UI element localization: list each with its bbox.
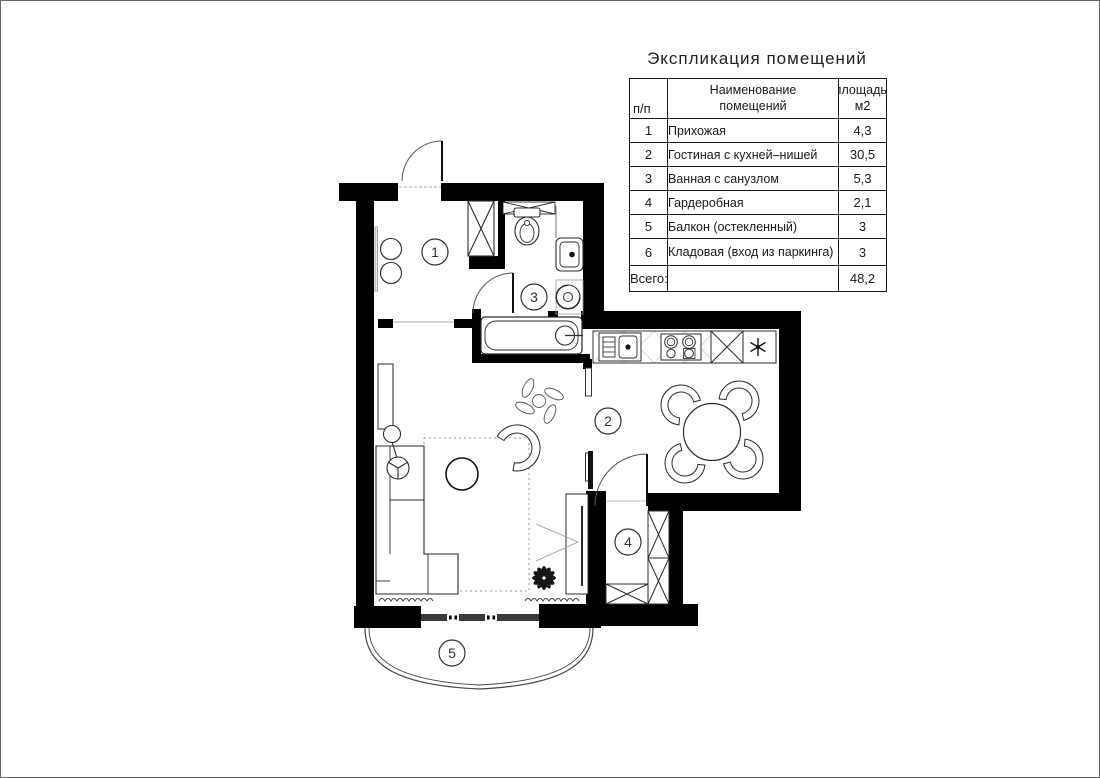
table-row: 3 Ванная с санузлом 5,3 <box>630 167 887 191</box>
table-row: 1 Прихожая 4,3 <box>630 119 887 143</box>
toilet <box>514 208 540 245</box>
svg-text:5: 5 <box>448 645 456 661</box>
table-row: 4 Гардеробная 2,1 <box>630 191 887 215</box>
table-row: 6 Кладовая (вход из паркинга) 3 <box>630 239 887 266</box>
bathtub <box>481 317 583 354</box>
radiators <box>379 599 579 602</box>
hall-cabinet <box>468 201 494 256</box>
table-title: Экспликация помещений <box>629 49 885 69</box>
room-label-1: 1 <box>422 239 448 265</box>
total-area: 48,2 <box>839 266 887 292</box>
wash-basin <box>556 238 583 271</box>
tall-cabinet <box>711 331 743 363</box>
window-unit <box>421 614 539 621</box>
room-label-5: 5 <box>439 640 465 666</box>
drawing-sheet: 1 2 3 4 5 Экспликация помещений п/п Наим… <box>0 0 1100 778</box>
tv-panel <box>588 451 593 489</box>
svg-text:3: 3 <box>530 289 538 305</box>
table-header-row: п/п Наименование помещений площадь, м2 <box>630 79 887 119</box>
room-label-3: 3 <box>521 284 547 310</box>
bathroom-door <box>473 273 513 313</box>
svg-text:1: 1 <box>431 244 439 260</box>
armchair <box>497 425 540 471</box>
ceiling-light <box>743 331 776 363</box>
svg-text:2: 2 <box>604 413 612 429</box>
table-total-row: Всего: 48,2 <box>630 266 887 292</box>
wardrobe-cells <box>606 511 669 604</box>
side-cabinet <box>566 494 588 594</box>
entry-door <box>402 141 442 181</box>
kitchen-sink <box>599 333 641 361</box>
room-label-2: 2 <box>595 408 621 434</box>
dining-table <box>684 404 741 461</box>
svg-text:4: 4 <box>624 534 632 550</box>
header-num: п/п <box>630 79 667 118</box>
wall-shelf <box>378 364 393 429</box>
plant <box>532 566 556 590</box>
coffee-table <box>446 458 478 490</box>
total-label: Всего: <box>630 266 668 292</box>
stools <box>381 239 402 284</box>
hanging-decor <box>514 377 565 425</box>
table-row: 2 Гостиная с кухней–нишей 30,5 <box>630 143 887 167</box>
floor-plan: 1 2 3 4 5 <box>1 1 1100 778</box>
room-label-4: 4 <box>615 529 641 555</box>
washing-machine <box>556 280 583 314</box>
explication-table: п/п Наименование помещений площадь, м2 1… <box>629 78 887 292</box>
table-row: 5 Балкон (остекленный) 3 <box>630 215 887 239</box>
header-name: Наименование помещений <box>668 80 838 117</box>
header-area: площадь, м2 <box>839 80 886 117</box>
cooktop <box>661 334 701 360</box>
balcony-outline <box>365 628 593 689</box>
mirror <box>375 227 378 291</box>
